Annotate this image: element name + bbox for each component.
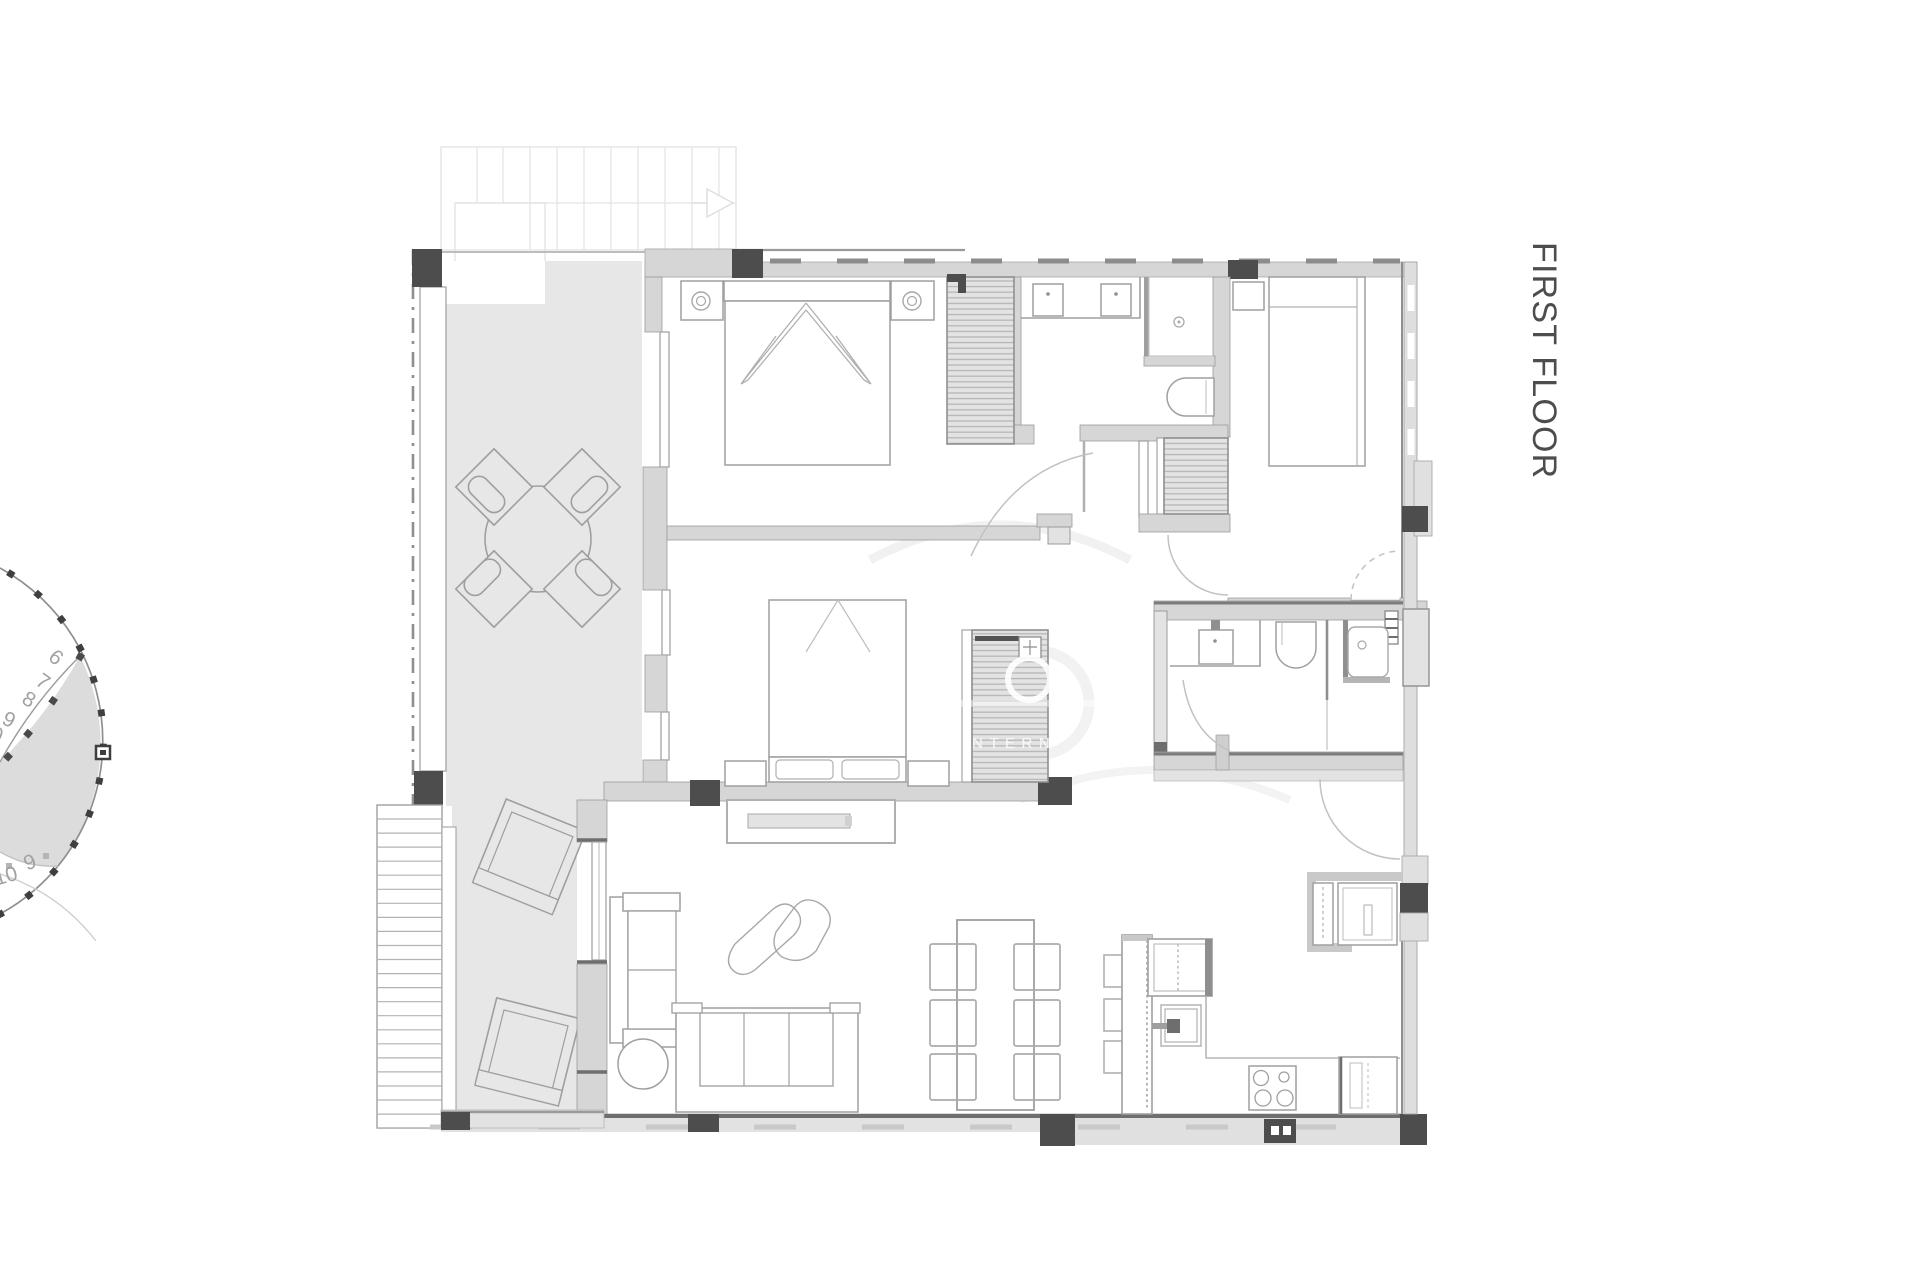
svg-text:10: 10 bbox=[0, 862, 20, 891]
svg-text:NTERN: NTERN bbox=[972, 735, 1056, 752]
svg-text:0: 0 bbox=[0, 722, 6, 748]
svg-text:8: 8 bbox=[18, 687, 40, 713]
svg-text:FIRST FLOOR: FIRST FLOOR bbox=[1525, 242, 1563, 479]
svg-text:6: 6 bbox=[44, 645, 68, 670]
